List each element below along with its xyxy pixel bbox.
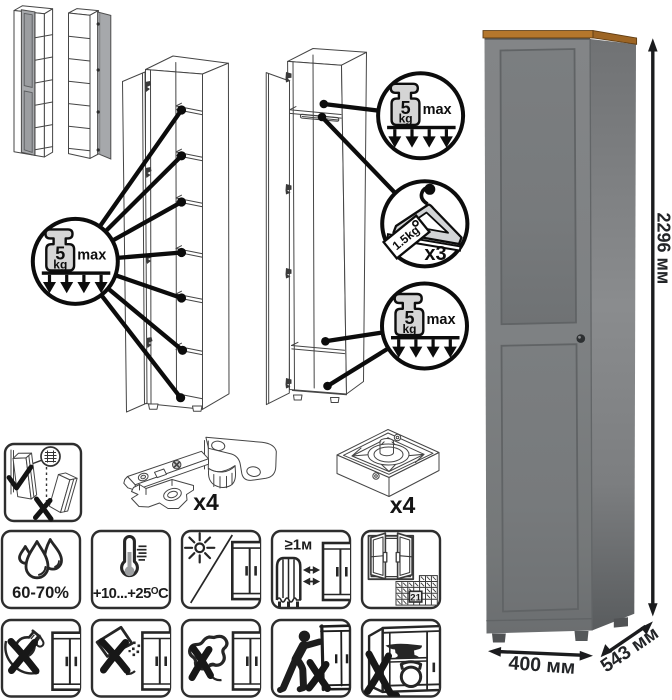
svg-text:21: 21 (410, 592, 421, 603)
svg-text:60-70%: 60-70% (12, 584, 69, 602)
svg-text:x4: x4 (390, 492, 416, 518)
svg-text:+10...+25OC: +10...+25OC (93, 586, 169, 602)
svg-text:≥1м: ≥1м (285, 537, 313, 554)
svg-text:x3: x3 (424, 243, 446, 265)
svg-text:x4: x4 (193, 489, 219, 515)
svg-text:2296 мм: 2296 мм (654, 212, 672, 284)
svg-text:400 мм: 400 мм (508, 652, 576, 679)
